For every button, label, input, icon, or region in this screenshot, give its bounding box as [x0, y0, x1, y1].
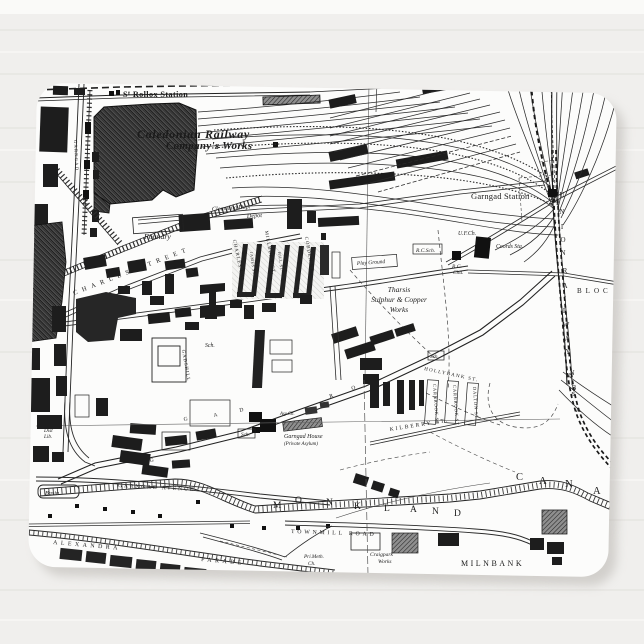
svg-text:Pri.Meth.: Pri.Meth. — [303, 554, 324, 560]
svg-text:W: W — [563, 321, 570, 329]
svg-text:St Rollox Station: St Rollox Station — [123, 90, 188, 99]
svg-text:U.F.Ch.: U.F.Ch. — [458, 231, 476, 237]
svg-text:A: A — [562, 282, 567, 290]
svg-text:Craigpark: Craigpark — [370, 552, 393, 558]
svg-text:N: N — [326, 498, 333, 508]
svg-text:Depot: Depot — [246, 212, 263, 220]
svg-text:Works: Works — [390, 305, 409, 314]
svg-text:R: R — [563, 267, 568, 275]
svg-text:A: A — [593, 486, 601, 497]
svg-text:Works: Works — [378, 559, 392, 565]
svg-text:Garngad Station: Garngad Station — [471, 191, 530, 201]
svg-text:O: O — [295, 496, 302, 506]
svg-text:R.C.Sch.: R.C.Sch. — [415, 248, 435, 254]
svg-text:O: O — [560, 236, 565, 244]
svg-text:M: M — [273, 501, 282, 511]
svg-text:Sch.: Sch. — [241, 432, 250, 438]
svg-text:Caledonian Railway: Caledonian Railway — [137, 127, 250, 141]
svg-text:A: A — [410, 505, 417, 515]
svg-text:Lib.: Lib. — [43, 434, 52, 440]
svg-text:L: L — [384, 504, 390, 514]
svg-text:Sch.: Sch. — [205, 343, 215, 349]
svg-text:N: N — [559, 208, 564, 216]
svg-text:L: L — [563, 307, 567, 315]
svg-text:Tharsis: Tharsis — [388, 285, 411, 294]
svg-text:BLOC: BLOC — [577, 287, 612, 295]
svg-text:Cha.: Cha. — [453, 270, 464, 276]
svg-text:Asy.Ch.: Asy.Ch. — [279, 412, 295, 417]
svg-text:A: A — [564, 335, 569, 343]
svg-text:Coords Sta.: Coords Sta. — [496, 244, 523, 250]
svg-text:Sch.: Sch. — [430, 354, 439, 360]
svg-text:A: A — [539, 476, 547, 487]
svg-text:MILNBANK: MILNBANK — [461, 559, 524, 568]
svg-text:N: N — [432, 507, 439, 517]
svg-text:N: N — [560, 249, 565, 257]
svg-text:N: N — [565, 479, 573, 490]
svg-text:Garngad House: Garngad House — [284, 434, 323, 440]
svg-text:B.: B. — [571, 392, 576, 398]
svg-text:(Private Asylum): (Private Asylum) — [284, 442, 318, 447]
svg-text:Foundry: Foundry — [143, 232, 171, 241]
svg-text:Ch.: Ch. — [308, 561, 315, 567]
svg-text:D: D — [454, 509, 461, 519]
svg-text:Y: Y — [565, 348, 570, 356]
svg-text:C: C — [516, 472, 523, 483]
svg-text:Basin: Basin — [45, 490, 59, 497]
svg-text:U: U — [559, 191, 564, 199]
